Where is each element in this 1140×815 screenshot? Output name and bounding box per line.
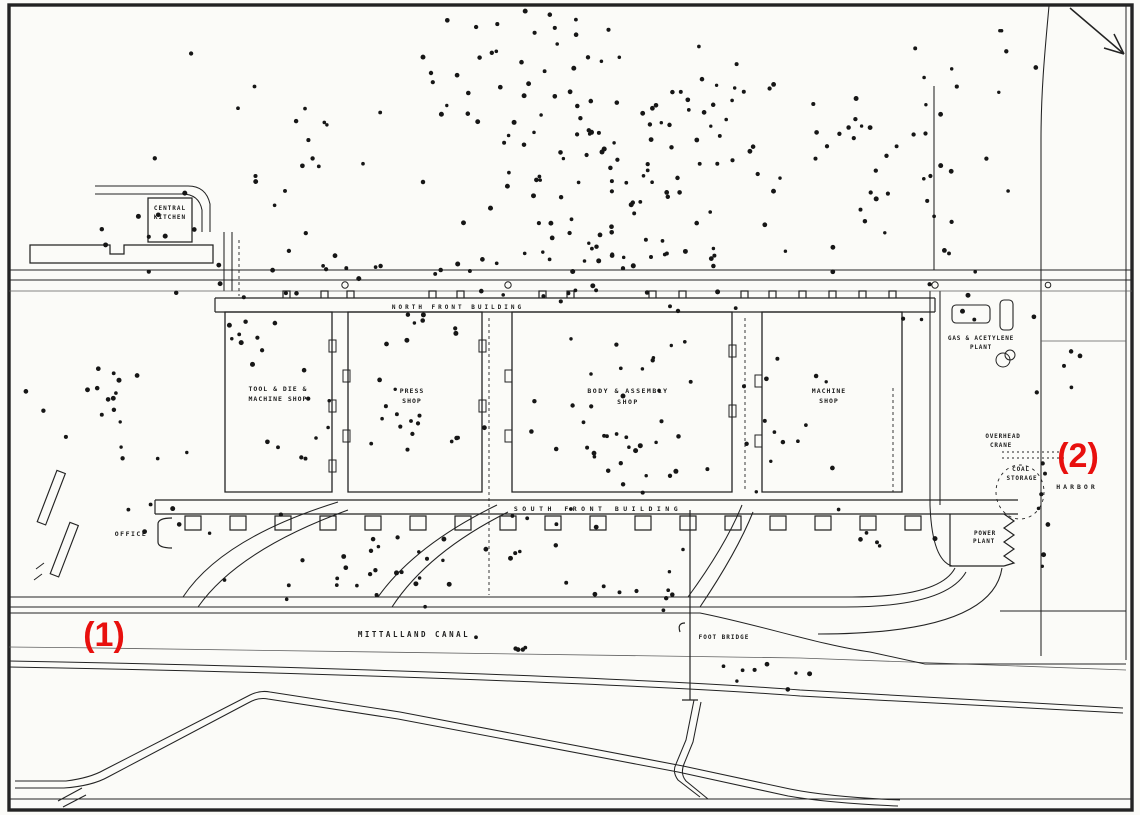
impact-dot xyxy=(554,447,559,452)
impact-dot xyxy=(508,556,513,561)
impact-dot xyxy=(700,77,705,82)
coal-storage-outline xyxy=(996,465,1044,519)
label-gas-acetylene-plant: PLANT xyxy=(970,344,992,351)
impact-dot xyxy=(447,582,452,587)
impact-dot xyxy=(874,196,879,201)
impact-dot xyxy=(409,419,413,423)
impact-dot xyxy=(265,439,270,444)
impact-dot xyxy=(586,55,590,59)
impact-dot xyxy=(755,490,758,493)
impact-dot xyxy=(949,169,954,174)
impact-dot xyxy=(310,156,314,160)
impact-dot xyxy=(539,113,543,117)
impact-dot xyxy=(156,457,160,461)
impact-dot xyxy=(95,386,100,391)
canal-banks xyxy=(9,613,1126,713)
impact-dot xyxy=(947,251,951,255)
impact-dot xyxy=(1000,29,1003,32)
impact-dot xyxy=(394,570,399,575)
impact-dot xyxy=(100,413,104,417)
impact-dot xyxy=(641,367,645,371)
dashed-guides xyxy=(239,240,893,595)
impact-dot xyxy=(405,448,409,452)
impact-dot xyxy=(615,432,619,436)
impact-dot xyxy=(588,132,592,136)
impact-dot xyxy=(120,456,124,460)
impact-dot xyxy=(450,440,454,444)
impact-dot xyxy=(553,26,557,30)
impact-dot xyxy=(1069,349,1073,353)
impact-dot xyxy=(646,169,650,173)
impact-dot xyxy=(811,102,815,106)
impact-dot xyxy=(236,106,240,110)
impact-dot xyxy=(587,128,591,132)
impact-dot xyxy=(279,513,283,517)
impact-dot xyxy=(119,445,122,448)
impact-dot xyxy=(253,85,257,89)
label-central-kitchen: CENTRAL xyxy=(154,205,186,212)
impact-dot xyxy=(837,508,841,512)
impact-dot xyxy=(648,122,652,126)
impact-dot xyxy=(395,535,399,539)
impact-dot xyxy=(1046,522,1051,527)
impact-dot xyxy=(804,423,808,427)
impact-dot xyxy=(564,581,568,585)
impact-dot xyxy=(112,371,116,375)
impact-dot xyxy=(516,647,521,652)
impact-dot xyxy=(577,181,581,185)
impact-dot xyxy=(594,525,599,530)
impact-dot xyxy=(689,380,693,384)
impact-dot xyxy=(621,482,625,486)
impact-dot xyxy=(218,281,223,286)
impact-dot xyxy=(733,86,736,89)
impact-dot xyxy=(763,419,767,423)
impact-dot xyxy=(356,276,361,281)
impact-dot xyxy=(778,176,781,179)
impact-dot xyxy=(421,55,426,60)
impact-dot xyxy=(177,522,182,527)
impact-dot xyxy=(609,224,614,229)
impact-dot xyxy=(438,268,443,273)
impact-dot xyxy=(814,130,819,135)
bomb-plot-map: CENTRAL KITCHEN TOOL & DIE & MACHINE SHO… xyxy=(0,0,1140,815)
impact-dot xyxy=(694,221,699,226)
impact-dot xyxy=(685,97,690,102)
impact-dot xyxy=(322,121,326,125)
impact-dot xyxy=(610,179,614,183)
impact-dot xyxy=(742,90,746,94)
impact-dot xyxy=(554,543,558,547)
impact-dot xyxy=(306,396,310,400)
impact-dot xyxy=(136,214,141,219)
impact-dot xyxy=(683,340,687,344)
impact-dot xyxy=(742,384,746,388)
impact-dot xyxy=(507,171,511,175)
impact-dot xyxy=(878,544,882,548)
impact-dot xyxy=(624,181,628,185)
impact-dot xyxy=(741,668,745,672)
impact-dot xyxy=(569,507,573,511)
impact-dot xyxy=(1032,314,1037,319)
impact-dot xyxy=(192,227,197,232)
impact-dot xyxy=(585,446,589,450)
impact-dot xyxy=(525,516,529,520)
impact-dot xyxy=(147,235,151,239)
impact-dot xyxy=(41,409,45,413)
impact-dot xyxy=(521,647,525,651)
impact-dot xyxy=(1070,386,1074,390)
impact-dot xyxy=(453,331,458,336)
impact-dot xyxy=(482,425,487,430)
impact-dot xyxy=(477,55,481,59)
impact-dot xyxy=(304,457,308,461)
impact-dot xyxy=(423,605,427,609)
impact-dot xyxy=(568,89,573,94)
impact-dot xyxy=(886,192,890,196)
impact-dot xyxy=(925,199,929,203)
impact-dot xyxy=(641,491,645,495)
impact-dot xyxy=(552,94,557,99)
impact-dot xyxy=(147,269,151,273)
impact-dot xyxy=(324,267,328,271)
impact-dot xyxy=(574,32,579,37)
impact-dot xyxy=(523,252,527,256)
impact-dot xyxy=(865,531,869,535)
impact-dot xyxy=(589,404,593,408)
impact-dot xyxy=(590,283,595,288)
impact-dot xyxy=(174,291,178,295)
impact-dot xyxy=(431,80,435,84)
impact-dot xyxy=(638,443,643,448)
impact-dot xyxy=(621,394,626,399)
impact-dot xyxy=(781,440,785,444)
impact-dot xyxy=(594,288,598,292)
gas-plant-building xyxy=(952,305,990,323)
impact-dot xyxy=(715,162,719,166)
impact-dot xyxy=(668,570,671,573)
impact-dot xyxy=(694,138,699,143)
impact-dot xyxy=(762,222,767,227)
impact-dot xyxy=(884,154,888,158)
impact-dot xyxy=(170,506,175,511)
impact-dot xyxy=(103,242,108,247)
impact-dot xyxy=(654,103,659,108)
impact-dot xyxy=(355,584,359,588)
impact-dot xyxy=(735,62,739,66)
impact-dot xyxy=(374,265,378,269)
impact-dot xyxy=(924,103,927,106)
impact-dot xyxy=(156,212,161,217)
impact-dot xyxy=(421,180,425,184)
impact-dot xyxy=(413,321,416,324)
impact-dot xyxy=(299,455,303,459)
impact-dot xyxy=(1006,189,1010,193)
label-tool-die-shop: MACHINE SHOP xyxy=(249,395,308,403)
road-junction-circle xyxy=(505,282,511,288)
impact-dot xyxy=(126,508,130,512)
impact-dot xyxy=(377,545,381,549)
impact-dot xyxy=(901,317,905,321)
impact-dot xyxy=(650,180,654,184)
impact-dot xyxy=(369,442,373,446)
impact-dot xyxy=(395,412,399,416)
impact-dot xyxy=(676,309,680,313)
court-ticks xyxy=(329,340,762,472)
north-front-building-strip xyxy=(215,291,935,312)
impact-dot xyxy=(495,22,499,26)
south-roads xyxy=(15,691,900,807)
impact-dot xyxy=(730,158,734,162)
impact-dot xyxy=(538,178,542,182)
impact-dot xyxy=(519,60,524,65)
impact-dot xyxy=(498,85,503,90)
impact-dot xyxy=(537,221,541,225)
impact-dot xyxy=(404,338,409,343)
impact-dot xyxy=(830,269,835,274)
impact-dot xyxy=(1041,565,1044,568)
impact-dot xyxy=(665,252,669,256)
impact-dot xyxy=(479,289,484,294)
impact-dot xyxy=(597,131,601,135)
impact-dot xyxy=(455,73,460,78)
impact-dot xyxy=(344,266,348,270)
impact-dot xyxy=(111,396,116,401)
impact-dot xyxy=(659,419,663,423)
impact-dot xyxy=(575,132,579,136)
impact-dot xyxy=(237,333,241,337)
impact-dot xyxy=(596,258,601,263)
impact-dot xyxy=(85,387,90,392)
impact-dot xyxy=(276,445,280,449)
impact-dot xyxy=(668,474,672,478)
impact-dot xyxy=(606,28,610,32)
impact-dot xyxy=(227,323,232,328)
impact-dot xyxy=(239,340,244,345)
impact-dot xyxy=(582,420,586,424)
impact-dot xyxy=(730,99,734,103)
impact-dot xyxy=(384,342,389,347)
impact-dot xyxy=(543,69,547,73)
impact-dot xyxy=(300,163,305,168)
impact-dot xyxy=(735,679,738,682)
impact-dot xyxy=(96,366,101,371)
impact-dot xyxy=(858,537,863,542)
impact-dot xyxy=(368,572,372,576)
impact-dot xyxy=(794,671,797,674)
impact-dot xyxy=(852,136,856,140)
impact-dot xyxy=(751,144,756,149)
impact-dot xyxy=(830,466,835,471)
impact-dot xyxy=(513,551,517,555)
impact-dot xyxy=(846,125,850,129)
impact-dot xyxy=(679,90,683,94)
impact-dot xyxy=(583,259,587,263)
impact-dot xyxy=(1039,492,1043,496)
impact-dot xyxy=(189,51,193,55)
impact-dot xyxy=(869,190,873,194)
impact-dot xyxy=(283,189,287,193)
impact-dot xyxy=(142,529,147,534)
impact-dot xyxy=(511,514,515,518)
label-power-plant: PLANT xyxy=(973,538,995,545)
annotation-2: (2) xyxy=(1057,437,1099,475)
barracks-building xyxy=(37,470,65,525)
impact-dot xyxy=(825,380,828,383)
impact-dot xyxy=(619,461,623,465)
impact-dot xyxy=(400,570,404,574)
impact-dot xyxy=(950,67,953,70)
impact-dot xyxy=(666,195,670,199)
impact-dot xyxy=(522,142,527,147)
impact-dot xyxy=(649,137,654,142)
impact-dot xyxy=(294,119,298,123)
frame-inner-lines xyxy=(10,5,1131,799)
impact-dot xyxy=(645,290,650,295)
impact-dot xyxy=(594,244,598,248)
impact-dot xyxy=(548,12,553,17)
impact-dot xyxy=(578,116,582,120)
impact-dot xyxy=(570,269,575,274)
label-body-assembly-shop: SHOP xyxy=(617,398,639,406)
label-harbor: HARBOR xyxy=(1056,483,1097,491)
impact-dot xyxy=(670,344,673,347)
impact-dot xyxy=(622,256,626,260)
impact-dot xyxy=(488,206,493,211)
impact-dot xyxy=(559,195,563,199)
impact-dot xyxy=(526,81,531,86)
impact-dot xyxy=(614,342,618,346)
impact-dot xyxy=(314,436,318,440)
impact-dot xyxy=(114,391,118,395)
impact-dot xyxy=(378,264,382,268)
impact-dot xyxy=(734,306,738,310)
impact-dot xyxy=(612,141,615,144)
impact-dot xyxy=(441,559,444,562)
impact-dot xyxy=(384,404,388,408)
impact-dot xyxy=(837,132,841,136)
impact-dot xyxy=(600,60,604,64)
impact-dot xyxy=(466,111,471,116)
annotation-1: (1) xyxy=(83,616,125,654)
impact-dot xyxy=(638,200,642,204)
impact-dot xyxy=(615,158,619,162)
impact-dot xyxy=(718,134,722,138)
impact-dot xyxy=(558,150,563,155)
impact-dot xyxy=(664,190,669,195)
impact-dot xyxy=(923,131,927,135)
impact-dot xyxy=(531,193,536,198)
impact-dot xyxy=(273,321,278,326)
road-junction-circle xyxy=(1045,282,1051,288)
impact-dot xyxy=(420,318,425,323)
impact-dot xyxy=(429,71,433,75)
impact-dot xyxy=(673,469,678,474)
impact-dot xyxy=(416,421,420,425)
impact-dot xyxy=(922,76,926,80)
impact-dot xyxy=(574,18,578,22)
impact-dot xyxy=(569,337,572,340)
impact-dot xyxy=(753,668,757,672)
impact-dot xyxy=(335,583,339,587)
label-press-shop: PRESS xyxy=(400,387,425,395)
impact-dot xyxy=(633,448,638,453)
impact-dot xyxy=(574,289,578,293)
impact-dot xyxy=(593,592,598,597)
map-frame xyxy=(9,5,1132,810)
impact-dot xyxy=(100,227,104,231)
impact-dot xyxy=(767,86,771,90)
impact-dot xyxy=(683,249,688,254)
impact-dot xyxy=(784,249,787,252)
impact-dot xyxy=(410,432,414,436)
impact-dot xyxy=(997,91,1000,94)
impact-dot xyxy=(938,163,943,168)
impact-dot xyxy=(960,309,965,314)
gas-plant-building-2 xyxy=(1000,300,1013,330)
impact-dot xyxy=(644,238,648,242)
north-arrow-icon xyxy=(1070,8,1124,54)
impact-dot xyxy=(621,266,625,270)
office-bracket xyxy=(158,518,172,548)
impact-dot xyxy=(466,91,471,96)
impact-dot xyxy=(24,389,29,394)
impact-dot xyxy=(398,425,402,429)
impact-dot xyxy=(615,100,620,105)
impact-dot xyxy=(744,442,748,446)
impact-dot xyxy=(973,270,977,274)
impact-dot xyxy=(548,258,552,262)
label-overhead-crane: CRANE xyxy=(990,442,1012,449)
impact-dot xyxy=(562,157,565,160)
impact-dot xyxy=(163,234,168,239)
impact-dot xyxy=(480,257,485,262)
impact-dot xyxy=(608,166,613,171)
impact-dot xyxy=(461,220,466,225)
impact-dot xyxy=(505,184,510,189)
impact-dot xyxy=(642,174,646,178)
impact-dot xyxy=(421,312,426,317)
impact-dot xyxy=(640,111,645,116)
impact-dot xyxy=(371,537,376,542)
impact-dot xyxy=(610,252,614,256)
impact-dot xyxy=(326,426,330,430)
impact-dot xyxy=(532,131,536,135)
impact-dot xyxy=(933,536,938,541)
impact-dot xyxy=(702,110,707,115)
impact-dot xyxy=(284,291,288,295)
impact-dot xyxy=(445,104,448,107)
impact-dot xyxy=(106,397,111,402)
impact-dot xyxy=(715,84,718,87)
label-north-front-building: NORTH FRONT BUILDING xyxy=(392,304,524,311)
impact-dot xyxy=(570,217,574,221)
impact-dot xyxy=(932,214,936,218)
impact-dot xyxy=(380,417,384,421)
main-roads xyxy=(9,6,1132,656)
red-annotations: (1) (2) xyxy=(83,437,1099,654)
impact-dot xyxy=(242,295,246,299)
impact-dot xyxy=(657,389,661,393)
impact-dot xyxy=(813,157,817,161)
impact-dot xyxy=(668,304,672,308)
impact-dot xyxy=(474,25,478,29)
impact-dot xyxy=(243,319,247,323)
impact-dot xyxy=(417,414,421,418)
road-junction-circle xyxy=(932,282,938,288)
impact-dot xyxy=(153,156,157,160)
impact-dot xyxy=(863,219,867,223)
